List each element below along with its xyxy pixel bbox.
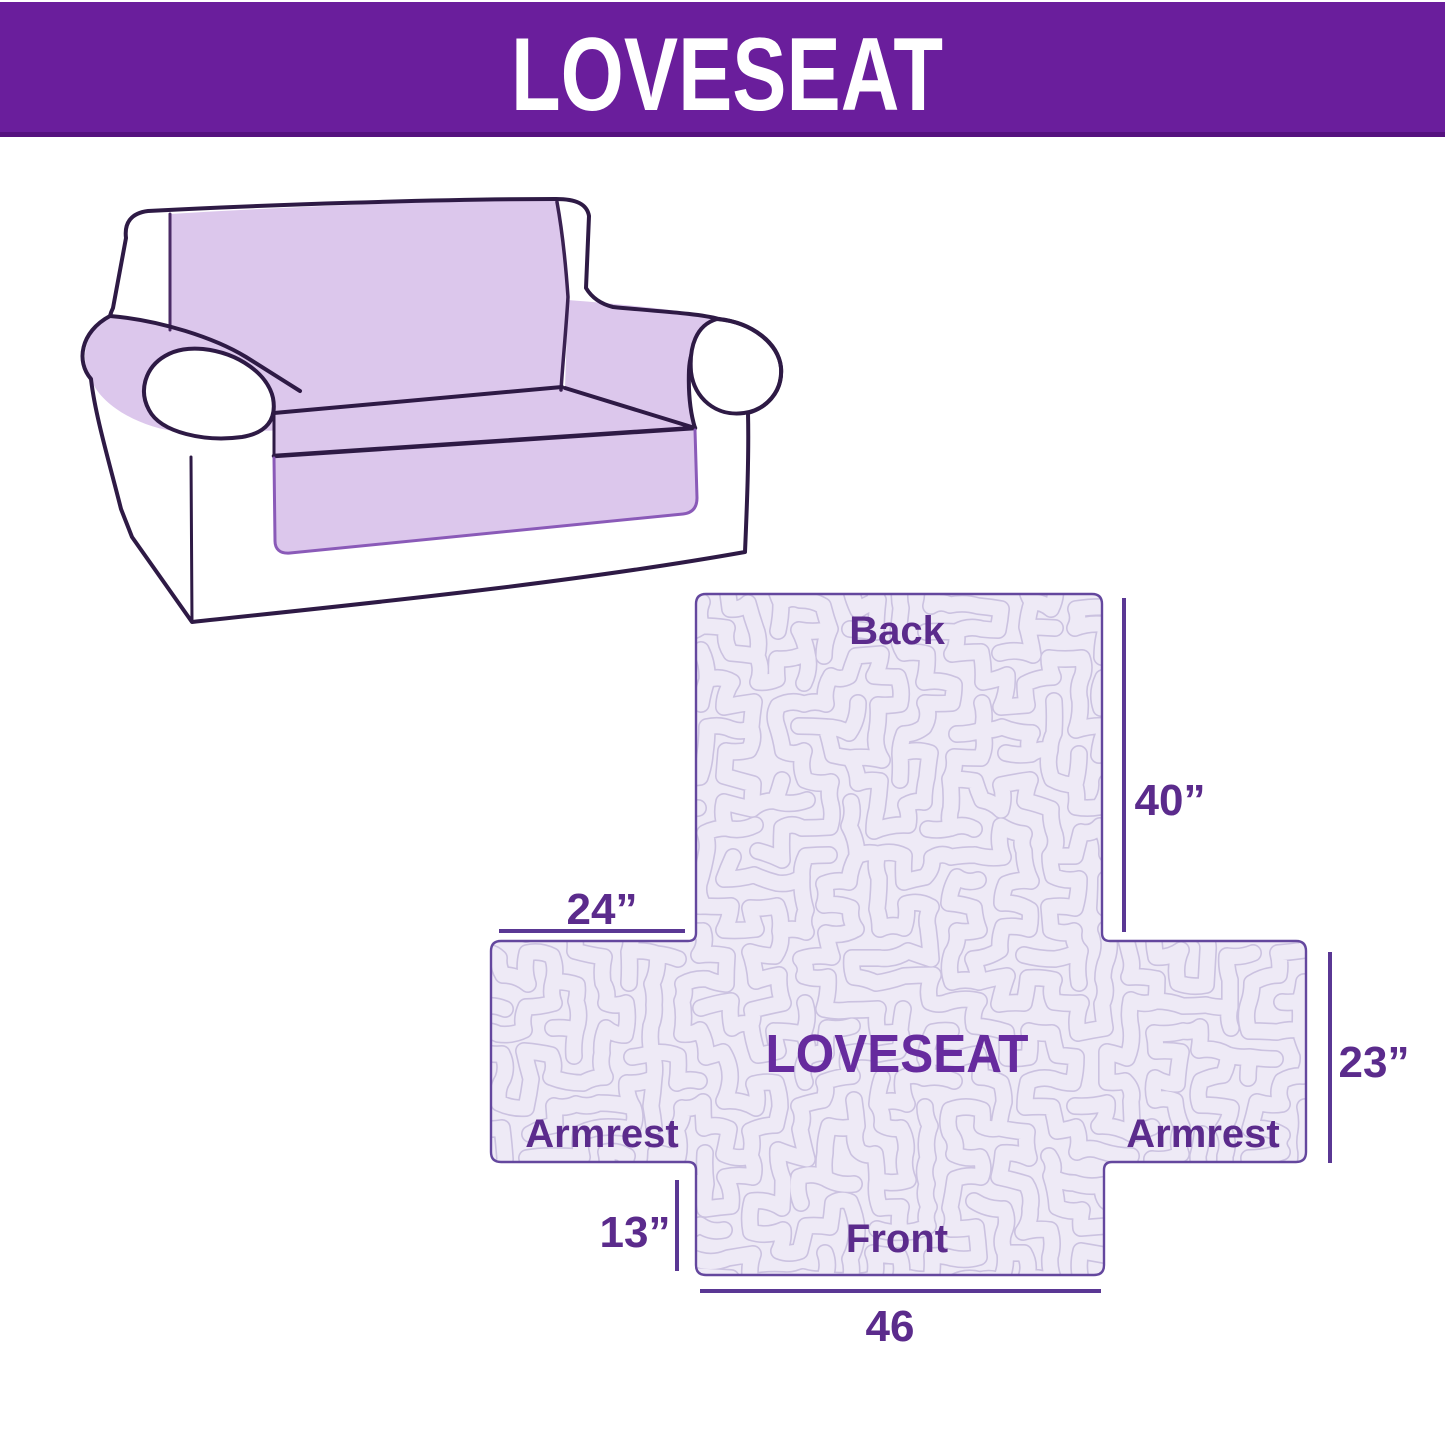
svg-text:Armrest: Armrest bbox=[1126, 1112, 1279, 1156]
svg-text:LOVESEAT: LOVESEAT bbox=[766, 1024, 1029, 1084]
svg-text:Back: Back bbox=[849, 609, 945, 653]
svg-text:23”: 23” bbox=[1339, 1038, 1410, 1087]
svg-text:24”: 24” bbox=[567, 885, 638, 934]
svg-text:40”: 40” bbox=[1135, 776, 1206, 825]
svg-text:46: 46 bbox=[866, 1302, 915, 1351]
svg-text:Armrest: Armrest bbox=[525, 1112, 678, 1156]
svg-text:13”: 13” bbox=[600, 1208, 671, 1257]
svg-text:LOVESEAT: LOVESEAT bbox=[511, 17, 943, 133]
svg-text:Front: Front bbox=[846, 1217, 948, 1261]
